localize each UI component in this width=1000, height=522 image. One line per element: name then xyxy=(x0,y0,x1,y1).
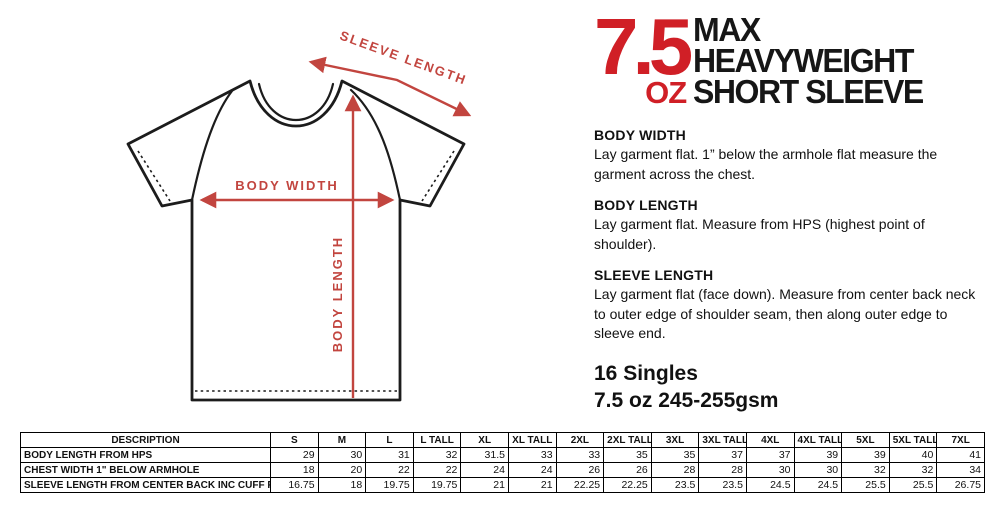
body-width-label: BODY WIDTH xyxy=(235,178,339,193)
measurement-value: 31 xyxy=(366,448,414,463)
measurement-value: 19.75 xyxy=(366,478,414,493)
table-header-size: 2XL xyxy=(556,433,604,448)
measurement-value: 26 xyxy=(604,463,652,478)
measurement-value: 30 xyxy=(746,463,794,478)
table-header-size: 3XL xyxy=(651,433,699,448)
table-header-size: 3XL TALL xyxy=(699,433,747,448)
measurement-value: 30 xyxy=(794,463,842,478)
product-title: 7.5 OZ MAX HEAVYWEIGHT SHORT SLEEVE xyxy=(594,12,994,107)
title-line-3: SHORT SLEEVE xyxy=(693,76,923,107)
fabric-weight: 7.5 oz 245-255gsm xyxy=(594,387,994,414)
table-row: CHEST WIDTH 1" BELOW ARMHOLE182022222424… xyxy=(21,463,985,478)
product-title-lines: MAX HEAVYWEIGHT SHORT SLEEVE xyxy=(693,14,923,107)
table-row: BODY LENGTH FROM HPS2930313231.533333535… xyxy=(21,448,985,463)
measurement-value: 28 xyxy=(699,463,747,478)
title-line-1: MAX xyxy=(693,14,923,45)
measurement-value: 18 xyxy=(271,463,319,478)
oz-badge: 7.5 OZ xyxy=(594,12,691,106)
measurement-value: 34 xyxy=(937,463,985,478)
sleeve-length-label: SLEEVE LENGTH xyxy=(338,28,469,88)
measurement-value: 23.5 xyxy=(651,478,699,493)
measurement-value: 37 xyxy=(699,448,747,463)
measurement-value: 25.5 xyxy=(842,478,890,493)
measurement-value: 24 xyxy=(461,463,509,478)
table-header-description: DESCRIPTION xyxy=(21,433,271,448)
fabric-info: 16 Singles 7.5 oz 245-255gsm xyxy=(594,360,994,414)
section-heading: SLEEVE LENGTH xyxy=(594,265,979,285)
table-header-size: 5XL xyxy=(842,433,890,448)
measurement-value: 23.5 xyxy=(699,478,747,493)
measurement-value: 33 xyxy=(508,448,556,463)
size-table-container: DESCRIPTIONSMLL TALLXLXL TALL2XL2XL TALL… xyxy=(20,432,985,493)
measurement-value: 24 xyxy=(508,463,556,478)
measurement-value: 39 xyxy=(842,448,890,463)
title-line-2: HEAVYWEIGHT xyxy=(693,45,923,76)
measurement-value: 16.75 xyxy=(271,478,319,493)
section-body: Lay garment flat. Measure from HPS (high… xyxy=(594,215,979,254)
measurement-value: 24.5 xyxy=(746,478,794,493)
fabric-singles: 16 Singles xyxy=(594,360,994,387)
measurement-value: 30 xyxy=(318,448,366,463)
measurement-value: 28 xyxy=(651,463,699,478)
table-header-size: XL TALL xyxy=(508,433,556,448)
table-header-size: 4XL TALL xyxy=(794,433,842,448)
table-header-size: XL xyxy=(461,433,509,448)
measurement-value: 37 xyxy=(746,448,794,463)
measurement-value: 25.5 xyxy=(889,478,937,493)
table-header-size: 4XL xyxy=(746,433,794,448)
measurement-value: 22 xyxy=(413,463,461,478)
measurement-value: 33 xyxy=(556,448,604,463)
measurement-value: 35 xyxy=(604,448,652,463)
size-chart-page: SLEEVE LENGTH BODY WIDTH BODY LENGTH 7.5… xyxy=(0,0,1000,522)
measurement-instructions: BODY WIDTH Lay garment flat. 1” below th… xyxy=(594,125,979,344)
table-header-size: S xyxy=(271,433,319,448)
measurement-value: 21 xyxy=(508,478,556,493)
section-body: Lay garment flat. 1” below the armhole f… xyxy=(594,145,979,184)
table-header-row: DESCRIPTIONSMLL TALLXLXL TALL2XL2XL TALL… xyxy=(21,433,985,448)
measurement-value: 32 xyxy=(413,448,461,463)
section-body-length: BODY LENGTH Lay garment flat. Measure fr… xyxy=(594,195,979,254)
table-header-size: 7XL xyxy=(937,433,985,448)
measurement-value: 41 xyxy=(937,448,985,463)
measurement-value: 29 xyxy=(271,448,319,463)
section-sleeve-length: SLEEVE LENGTH Lay garment flat (face dow… xyxy=(594,265,979,344)
measurement-value: 39 xyxy=(794,448,842,463)
table-header-size: L TALL xyxy=(413,433,461,448)
table-header-size: 5XL TALL xyxy=(889,433,937,448)
measurement-value: 22.25 xyxy=(604,478,652,493)
section-body: Lay garment flat (face down). Measure fr… xyxy=(594,285,979,344)
measurement-value: 40 xyxy=(889,448,937,463)
measurement-value: 32 xyxy=(889,463,937,478)
tshirt-diagram: SLEEVE LENGTH BODY WIDTH BODY LENGTH xyxy=(80,4,520,422)
measurement-value: 22.25 xyxy=(556,478,604,493)
measurement-value: 35 xyxy=(651,448,699,463)
measurement-value: 18 xyxy=(318,478,366,493)
section-heading: BODY LENGTH xyxy=(594,195,979,215)
oz-number: 7.5 xyxy=(594,12,691,82)
size-table: DESCRIPTIONSMLL TALLXLXL TALL2XL2XL TALL… xyxy=(20,432,985,493)
table-header-size: 2XL TALL xyxy=(604,433,652,448)
body-length-label: BODY LENGTH xyxy=(330,236,345,352)
section-heading: BODY WIDTH xyxy=(594,125,979,145)
measurement-value: 24.5 xyxy=(794,478,842,493)
info-panel: 7.5 OZ MAX HEAVYWEIGHT SHORT SLEEVE BODY… xyxy=(594,12,994,414)
measurement-value: 26 xyxy=(556,463,604,478)
tshirt-outline xyxy=(128,81,464,400)
measurement-value: 21 xyxy=(461,478,509,493)
table-row: SLEEVE LENGTH FROM CENTER BACK INC CUFF … xyxy=(21,478,985,493)
measurement-value: 20 xyxy=(318,463,366,478)
row-description: BODY LENGTH FROM HPS xyxy=(21,448,271,463)
section-body-width: BODY WIDTH Lay garment flat. 1” below th… xyxy=(594,125,979,184)
measurement-value: 19.75 xyxy=(413,478,461,493)
row-description: CHEST WIDTH 1" BELOW ARMHOLE xyxy=(21,463,271,478)
measurement-value: 32 xyxy=(842,463,890,478)
measurement-value: 31.5 xyxy=(461,448,509,463)
table-header-size: M xyxy=(318,433,366,448)
measurement-value: 26.75 xyxy=(937,478,985,493)
row-description: SLEEVE LENGTH FROM CENTER BACK INC CUFF … xyxy=(21,478,271,493)
table-header-size: L xyxy=(366,433,414,448)
measurement-value: 22 xyxy=(366,463,414,478)
